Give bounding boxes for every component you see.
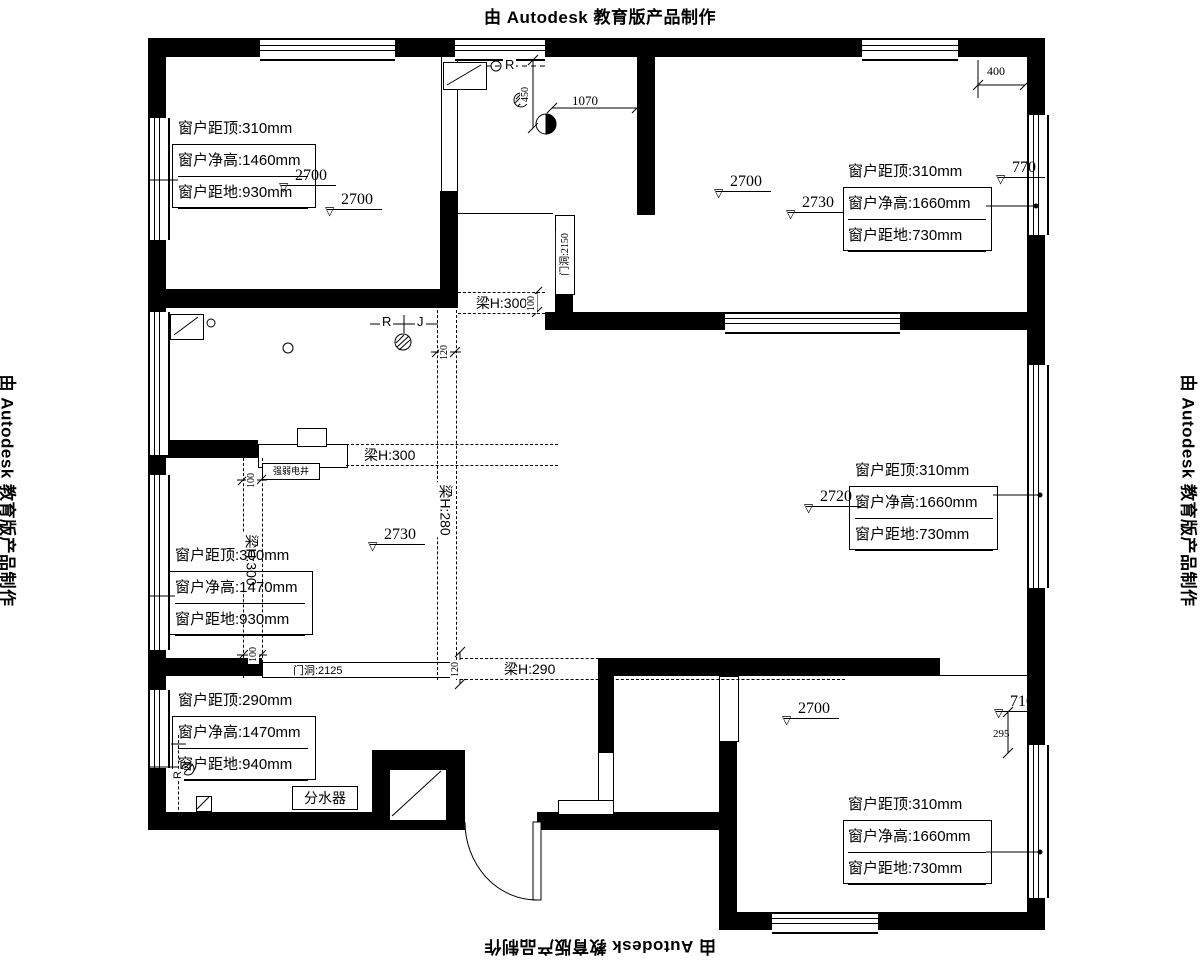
level-marker: ▽2730 bbox=[788, 193, 843, 213]
level-marker: ▽2700 bbox=[327, 190, 382, 210]
dim-text-vert: 100 bbox=[246, 640, 260, 668]
window-label: 窗户距顶:300mm bbox=[175, 540, 305, 572]
dim-text: 295 bbox=[993, 728, 1010, 740]
window-label-group-top-right: 窗户距顶:310mm 窗户净高:1660mm 窗户距地:730mm bbox=[848, 156, 986, 252]
window-label: 窗户距地:940mm bbox=[178, 749, 308, 781]
entry-door-leaf bbox=[533, 822, 541, 900]
dim-text: 1070 bbox=[572, 93, 598, 109]
window-label: 窗户净高:1660mm bbox=[848, 188, 986, 220]
window-label: 窗户距地:730mm bbox=[848, 853, 986, 885]
level-triangle-icon: ▽ bbox=[368, 541, 377, 551]
window-label: 窗户距顶:310mm bbox=[178, 113, 308, 145]
window-label-group-bottom-right: 窗户距顶:310mm 窗户净高:1660mm 窗户距地:730mm bbox=[848, 789, 986, 885]
level-marker: ▽2730 bbox=[370, 525, 425, 545]
window-label-group-mid-left: 窗户距顶:300mm 窗户净高:1470mm 窗户距地:930mm bbox=[175, 540, 305, 636]
leader-dot bbox=[1038, 850, 1042, 854]
window-label-group-bottom-left: 窗户距顶:290mm 窗户净高:1470mm 窗户距地:940mm bbox=[178, 685, 308, 781]
fixture-diagonal bbox=[447, 65, 481, 85]
bath-sink-circle bbox=[283, 343, 293, 353]
window-label: 窗户净高:1660mm bbox=[855, 487, 993, 519]
window-label-group-top-left: 窗户距顶:310mm 窗户净高:1460mm 窗户距地:930mm bbox=[178, 113, 308, 209]
dim-text-vert: 100 bbox=[244, 466, 258, 494]
dim-text-vert: 100 bbox=[524, 288, 538, 318]
dim-text-vert: 450 bbox=[518, 74, 532, 114]
level-triangle-icon: ▽ bbox=[325, 206, 334, 216]
riser-kitchen-label: R bbox=[503, 58, 516, 72]
dim-text-vert: 120 bbox=[448, 655, 462, 683]
level-marker: ▽770 bbox=[998, 158, 1045, 178]
window-label: 窗户距顶:310mm bbox=[855, 455, 993, 487]
level-triangle-icon: ▽ bbox=[996, 174, 1005, 184]
window-label: 窗户净高:1660mm bbox=[848, 821, 986, 853]
level-triangle-icon: ▽ bbox=[804, 503, 813, 513]
floor-plan: 由 Autodesk 教育版产品制作 由 Autodesk 教育版产品制作 由 … bbox=[0, 0, 1200, 960]
riser-r-label: R bbox=[380, 315, 393, 329]
stove-circle-fill bbox=[546, 114, 556, 134]
fixture-diagonal bbox=[174, 317, 198, 335]
leader-dot bbox=[1038, 493, 1042, 497]
level-marker: ▽2720 bbox=[806, 487, 861, 507]
window-label: 窗户距地:730mm bbox=[855, 519, 993, 551]
riser-j-label: J bbox=[415, 315, 426, 329]
window-label: 窗户距顶:310mm bbox=[848, 789, 986, 821]
dim-text-vert: 120 bbox=[437, 338, 451, 366]
window-label: 窗户距顶:310mm bbox=[848, 156, 986, 188]
window-label: 窗户距地:930mm bbox=[175, 604, 305, 636]
dim-text: 400 bbox=[987, 64, 1005, 79]
level-marker: ▽2700 bbox=[784, 699, 839, 719]
level-triangle-icon: ▽ bbox=[994, 708, 1003, 718]
shaft-diagonal bbox=[392, 771, 441, 816]
level-triangle-icon: ▽ bbox=[786, 209, 795, 219]
riser-entry-label: R bbox=[167, 762, 189, 788]
level-triangle-icon: ▽ bbox=[279, 182, 288, 192]
window-label-group-mid-right: 窗户距顶:310mm 窗户净高:1660mm 窗户距地:730mm bbox=[855, 455, 993, 551]
level-marker: ▽2700 bbox=[281, 166, 336, 186]
window-label: 窗户距地:730mm bbox=[848, 220, 986, 252]
entry-door-swing-arc bbox=[465, 822, 537, 900]
window-label: 窗户距顶:290mm bbox=[178, 685, 308, 717]
level-marker: ▽710 bbox=[996, 692, 1043, 712]
level-triangle-icon: ▽ bbox=[714, 188, 723, 198]
window-label: 窗户净高:1470mm bbox=[175, 572, 305, 604]
window-label: 窗户净高:1470mm bbox=[178, 717, 308, 749]
drain-diagonal bbox=[197, 797, 209, 809]
leader-dot bbox=[1034, 204, 1038, 208]
level-marker: ▽2700 bbox=[716, 172, 771, 192]
level-triangle-icon: ▽ bbox=[782, 715, 791, 725]
bath-circle bbox=[207, 319, 215, 327]
